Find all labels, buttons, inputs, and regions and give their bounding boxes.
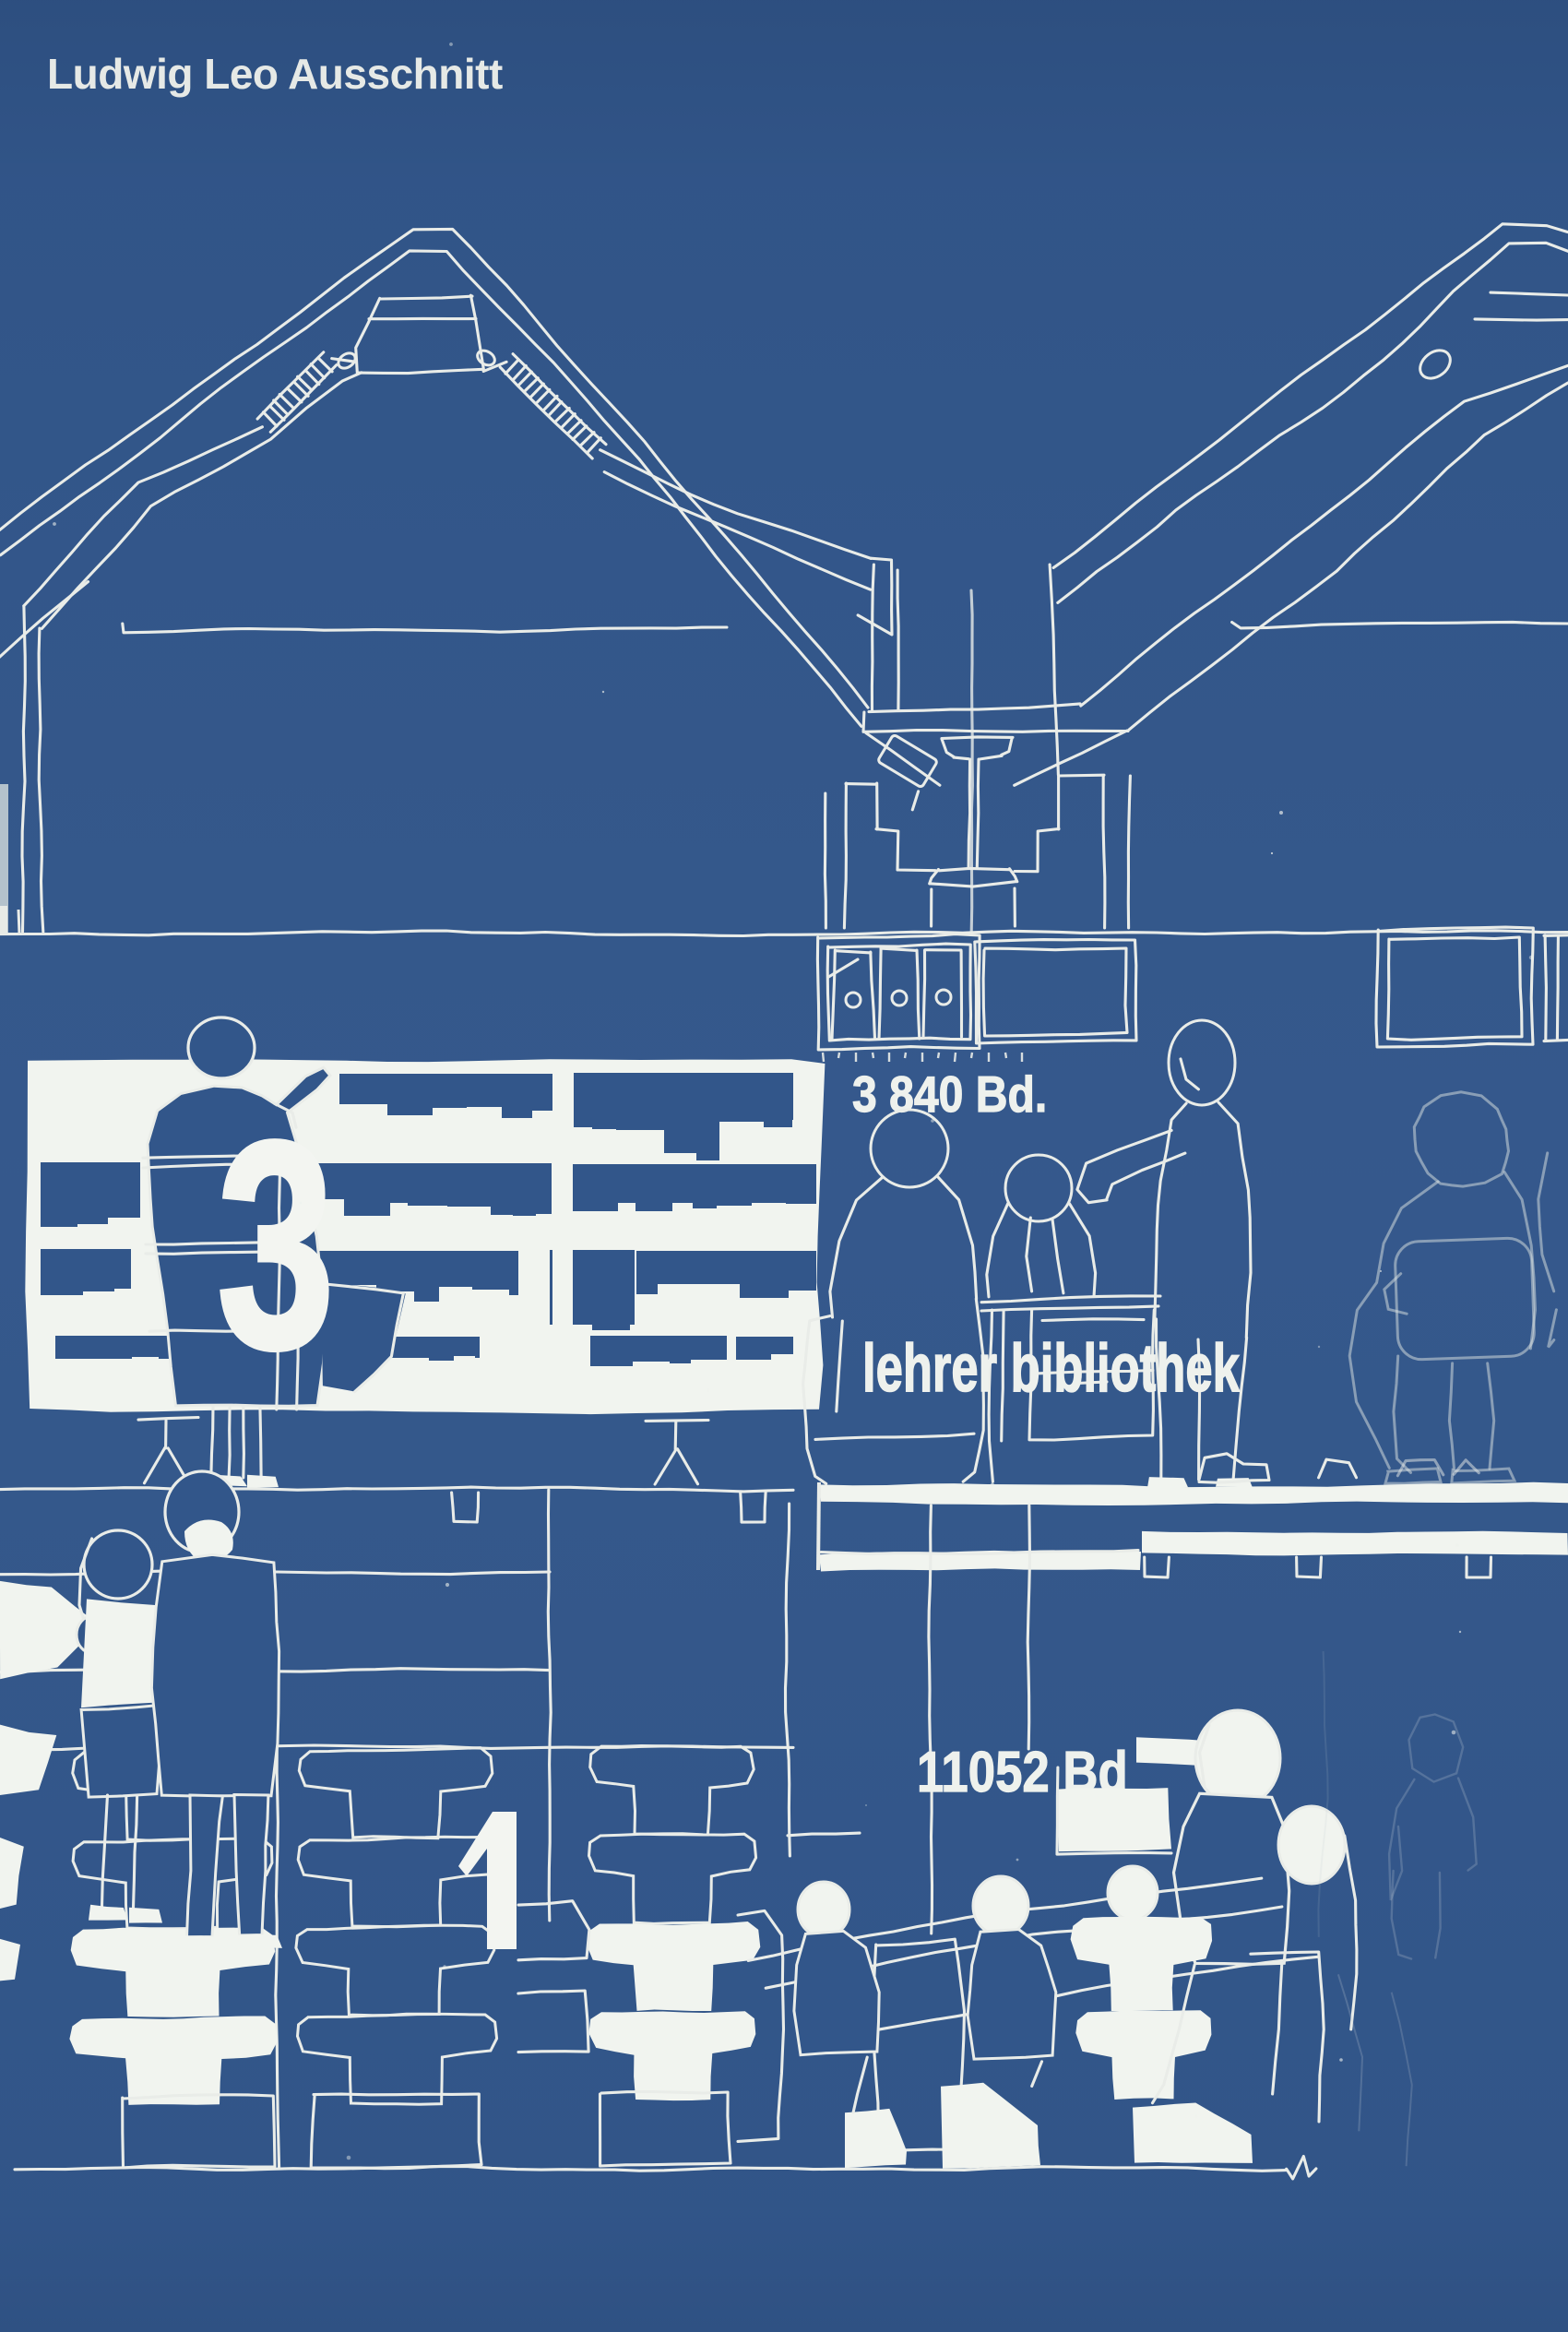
svg-text:lehrer bibliothek: lehrer bibliothek [862,1331,1240,1406]
svg-text:3: 3 [217,1081,335,1410]
svg-text:Ludwig Leo Ausschnitt: Ludwig Leo Ausschnitt [47,50,503,98]
svg-text:3 840 Bd.: 3 840 Bd. [852,1065,1047,1123]
